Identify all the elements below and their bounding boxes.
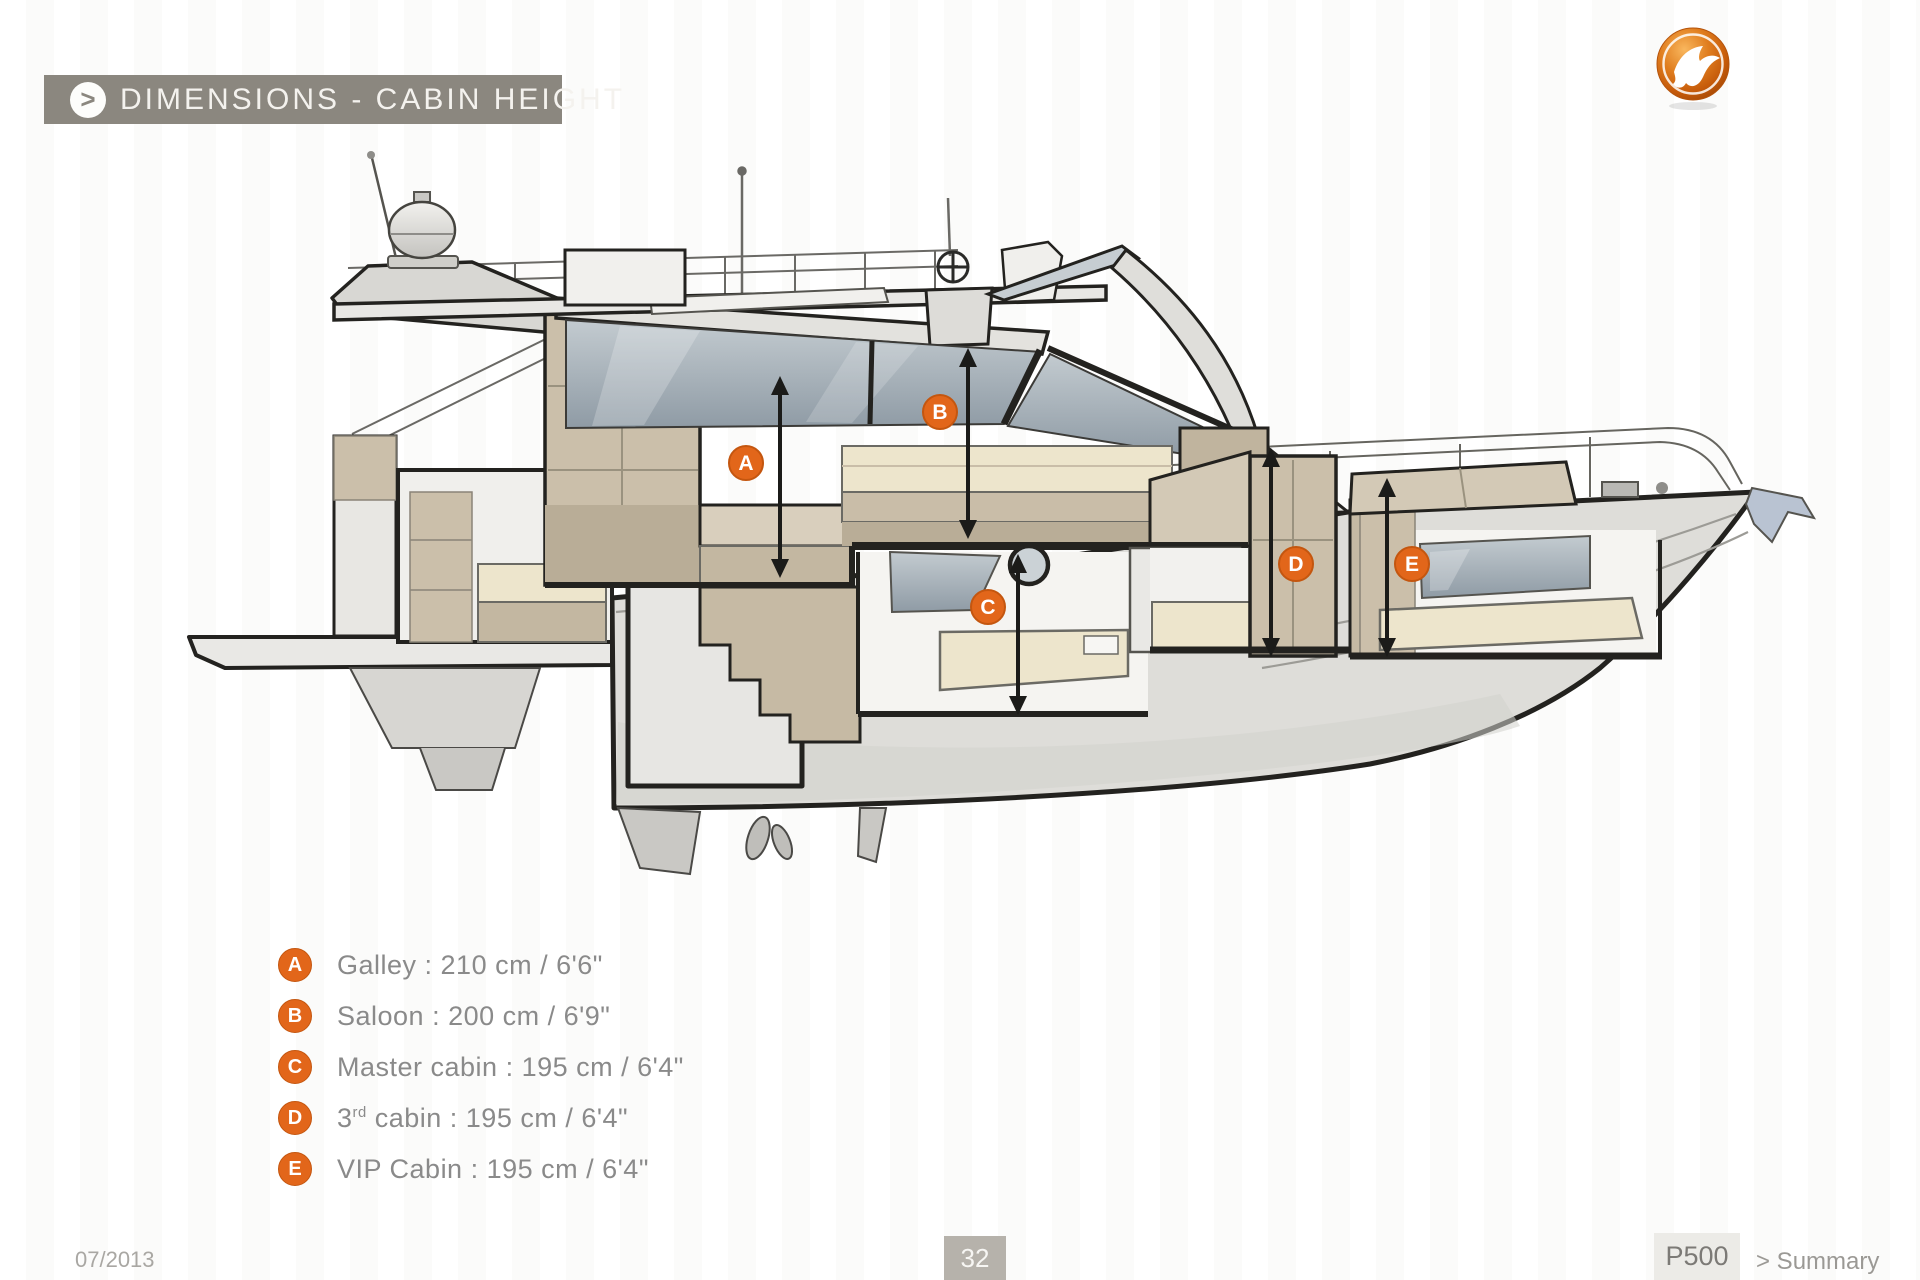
model-badge[interactable]: P500 xyxy=(1654,1233,1740,1280)
legend-badge-d: D xyxy=(278,1101,312,1135)
swim-platform xyxy=(189,637,612,790)
cabin-height-legend: A Galley : 210 cm / 6'6" B Saloon : 200 … xyxy=(278,948,684,1186)
legend-badge-c: C xyxy=(278,1050,312,1084)
helm-console xyxy=(926,288,992,346)
marker-e: E xyxy=(1395,547,1429,581)
svg-text:C: C xyxy=(980,596,995,619)
legend-label-c: Master cabin : 195 cm / 6'4" xyxy=(337,1052,684,1083)
propeller-drive xyxy=(618,808,886,874)
legend-badge-b: B xyxy=(278,999,312,1033)
legend-badge-a: A xyxy=(278,948,312,982)
legend-item-d: D 3rd cabin : 195 cm / 6'4" xyxy=(278,1101,684,1135)
legend-label-d: 3rd cabin : 195 cm / 6'4" xyxy=(337,1103,628,1134)
legend-item-e: E VIP Cabin : 195 cm / 6'4" xyxy=(278,1152,684,1186)
flybridge-console xyxy=(565,250,685,305)
svg-text:E: E xyxy=(1405,553,1419,576)
page-number-badge: 32 xyxy=(944,1236,1006,1280)
marker-c: C xyxy=(971,590,1005,624)
antenna-icon xyxy=(739,168,951,301)
brochure-page: > DIMENSIONS - CABIN HEIGHT xyxy=(0,0,1920,1280)
windlass-icon xyxy=(1602,482,1638,497)
anchor-icon xyxy=(1746,488,1814,542)
radar-dome-icon xyxy=(389,192,455,258)
legend-item-a: A Galley : 210 cm / 6'6" xyxy=(278,948,684,982)
marker-b: B xyxy=(923,395,957,429)
svg-text:D: D xyxy=(1288,553,1303,576)
svg-text:A: A xyxy=(738,452,753,475)
antenna-tip xyxy=(367,151,375,159)
svg-text:B: B xyxy=(932,401,947,424)
legend-label-e: VIP Cabin : 195 cm / 6'4" xyxy=(337,1154,649,1185)
legend-label-a: Galley : 210 cm / 6'6" xyxy=(337,950,603,981)
footer-date: 07/2013 xyxy=(75,1247,155,1273)
legend-item-b: B Saloon : 200 cm / 6'9" xyxy=(278,999,684,1033)
legend-item-c: C Master cabin : 195 cm / 6'4" xyxy=(278,1050,684,1084)
legend-badge-e: E xyxy=(278,1152,312,1186)
summary-link[interactable]: > Summary xyxy=(1756,1248,1879,1276)
legend-label-b: Saloon : 200 cm / 6'9" xyxy=(337,1001,610,1032)
marker-a: A xyxy=(729,446,763,480)
marker-d: D xyxy=(1279,547,1313,581)
steering-wheel-icon xyxy=(938,252,968,282)
